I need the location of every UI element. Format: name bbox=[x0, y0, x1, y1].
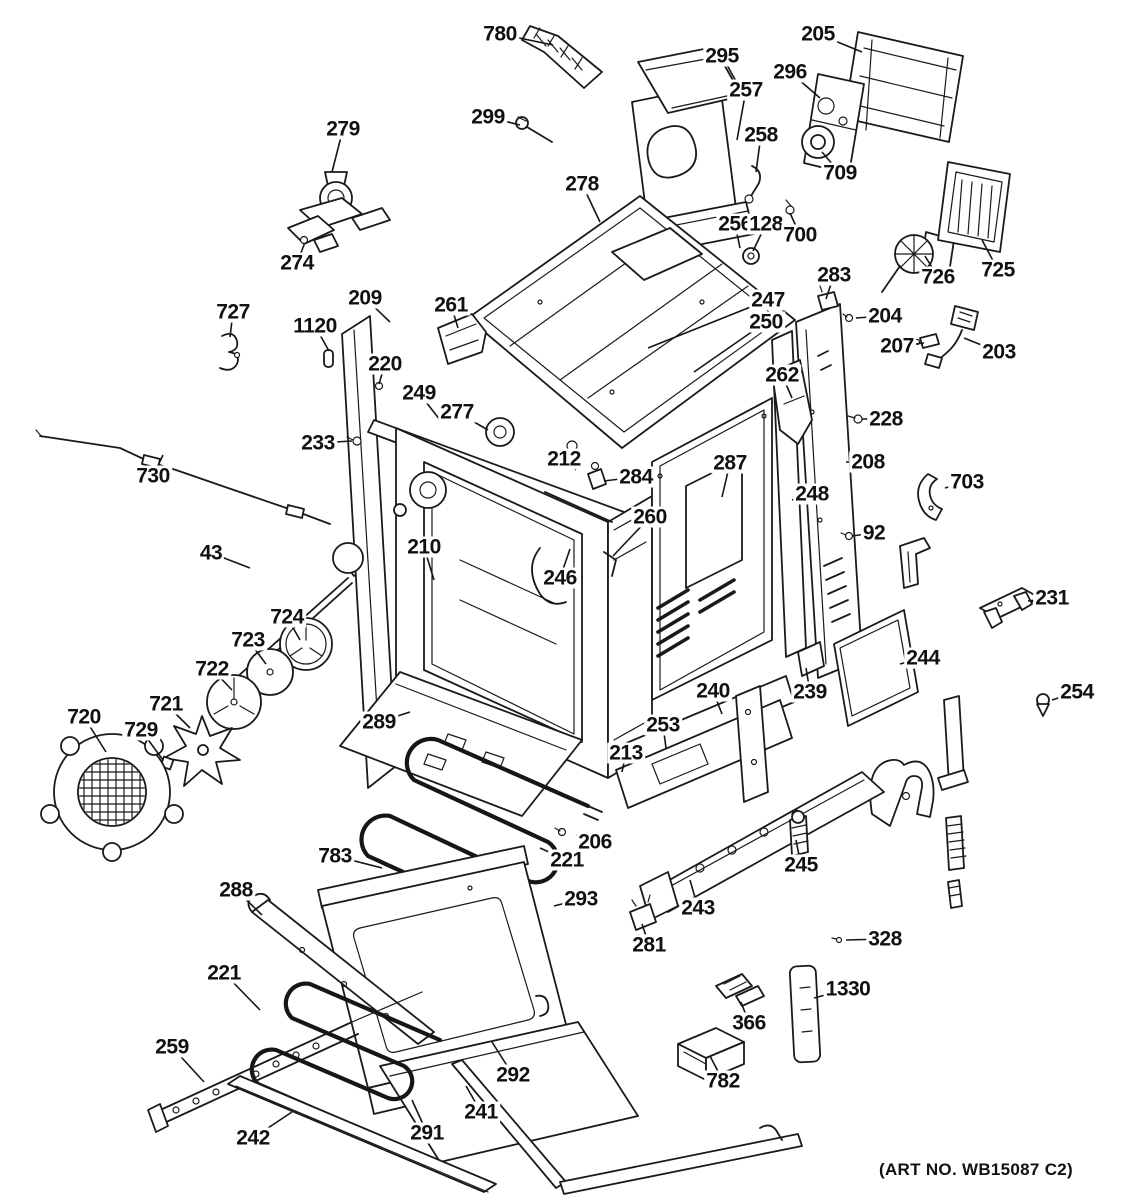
part-label-209: 209 bbox=[346, 288, 384, 309]
part-label-700: 700 bbox=[781, 225, 819, 246]
part-label-259: 259 bbox=[153, 1037, 191, 1058]
part-label-221: 221 bbox=[548, 850, 586, 871]
part-label-261: 261 bbox=[432, 295, 470, 316]
part-label-292: 292 bbox=[494, 1065, 532, 1086]
part-label-727: 727 bbox=[214, 302, 252, 323]
part-label-721: 721 bbox=[147, 694, 185, 715]
part-label-213: 213 bbox=[607, 743, 645, 764]
part-label-720: 720 bbox=[65, 707, 103, 728]
part-label-203: 203 bbox=[980, 342, 1018, 363]
part-label-1120: 1120 bbox=[291, 316, 339, 337]
part-label-243: 243 bbox=[679, 898, 717, 919]
part-label-262: 262 bbox=[763, 365, 801, 386]
part-label-247: 247 bbox=[749, 290, 787, 311]
part-label-722: 722 bbox=[193, 659, 231, 680]
part-label-257: 257 bbox=[727, 80, 765, 101]
part-label-92: 92 bbox=[861, 523, 887, 544]
part-label-205: 205 bbox=[799, 24, 837, 45]
part-label-250: 250 bbox=[747, 312, 785, 333]
part-label-780: 780 bbox=[481, 24, 519, 45]
part-label-128: 128 bbox=[747, 214, 785, 235]
part-label-244: 244 bbox=[904, 648, 942, 669]
part-label-289: 289 bbox=[360, 712, 398, 733]
diagram-canvas: 7802952052962572992582797092782561287007… bbox=[0, 0, 1125, 1200]
part-label-248: 248 bbox=[793, 484, 831, 505]
part-label-730: 730 bbox=[134, 466, 172, 487]
part-label-208: 208 bbox=[849, 452, 887, 473]
part-label-366: 366 bbox=[730, 1013, 768, 1034]
part-label-253: 253 bbox=[644, 715, 682, 736]
part-label-246: 246 bbox=[541, 568, 579, 589]
part-label-274: 274 bbox=[278, 253, 316, 274]
part-label-291: 291 bbox=[408, 1123, 446, 1144]
part-label-242: 242 bbox=[234, 1128, 272, 1149]
part-label-725: 725 bbox=[979, 260, 1017, 281]
part-label-43: 43 bbox=[198, 543, 224, 564]
art-number: (ART NO. WB15087 C2) bbox=[879, 1160, 1073, 1180]
part-label-241: 241 bbox=[462, 1102, 500, 1123]
part-label-328: 328 bbox=[866, 929, 904, 950]
part-label-703: 703 bbox=[948, 472, 986, 493]
part-label-210: 210 bbox=[405, 537, 443, 558]
part-label-782: 782 bbox=[704, 1071, 742, 1092]
part-label-245: 245 bbox=[782, 855, 820, 876]
part-label-231: 231 bbox=[1033, 588, 1071, 609]
part-label-299: 299 bbox=[469, 107, 507, 128]
part-label-1330: 1330 bbox=[824, 979, 873, 1000]
part-label-783: 783 bbox=[316, 846, 354, 867]
part-label-729: 729 bbox=[122, 720, 160, 741]
part-label-279: 279 bbox=[324, 119, 362, 140]
part-label-220: 220 bbox=[366, 354, 404, 375]
part-label-288: 288 bbox=[217, 880, 255, 901]
part-labels: 7802952052962572992582797092782561287007… bbox=[0, 0, 1125, 1200]
part-label-239: 239 bbox=[791, 682, 829, 703]
part-label-709: 709 bbox=[821, 163, 859, 184]
part-label-278: 278 bbox=[563, 174, 601, 195]
part-label-295: 295 bbox=[703, 46, 741, 67]
part-label-281: 281 bbox=[630, 935, 668, 956]
part-label-726: 726 bbox=[919, 267, 957, 288]
part-label-228: 228 bbox=[867, 409, 905, 430]
part-label-723: 723 bbox=[229, 630, 267, 651]
part-label-284: 284 bbox=[617, 467, 655, 488]
part-label-249: 249 bbox=[400, 383, 438, 404]
part-label-296: 296 bbox=[771, 62, 809, 83]
part-label-207: 207 bbox=[878, 336, 916, 357]
part-label-212: 212 bbox=[545, 449, 583, 470]
part-label-254: 254 bbox=[1058, 682, 1096, 703]
part-label-258: 258 bbox=[742, 125, 780, 146]
part-label-221: 221 bbox=[205, 963, 243, 984]
part-label-233: 233 bbox=[299, 433, 337, 454]
part-label-287: 287 bbox=[711, 453, 749, 474]
part-label-293: 293 bbox=[562, 889, 600, 910]
part-label-204: 204 bbox=[866, 306, 904, 327]
part-label-283: 283 bbox=[815, 265, 853, 286]
part-label-277: 277 bbox=[438, 402, 476, 423]
part-label-240: 240 bbox=[694, 681, 732, 702]
part-label-260: 260 bbox=[631, 507, 669, 528]
part-label-724: 724 bbox=[268, 607, 306, 628]
